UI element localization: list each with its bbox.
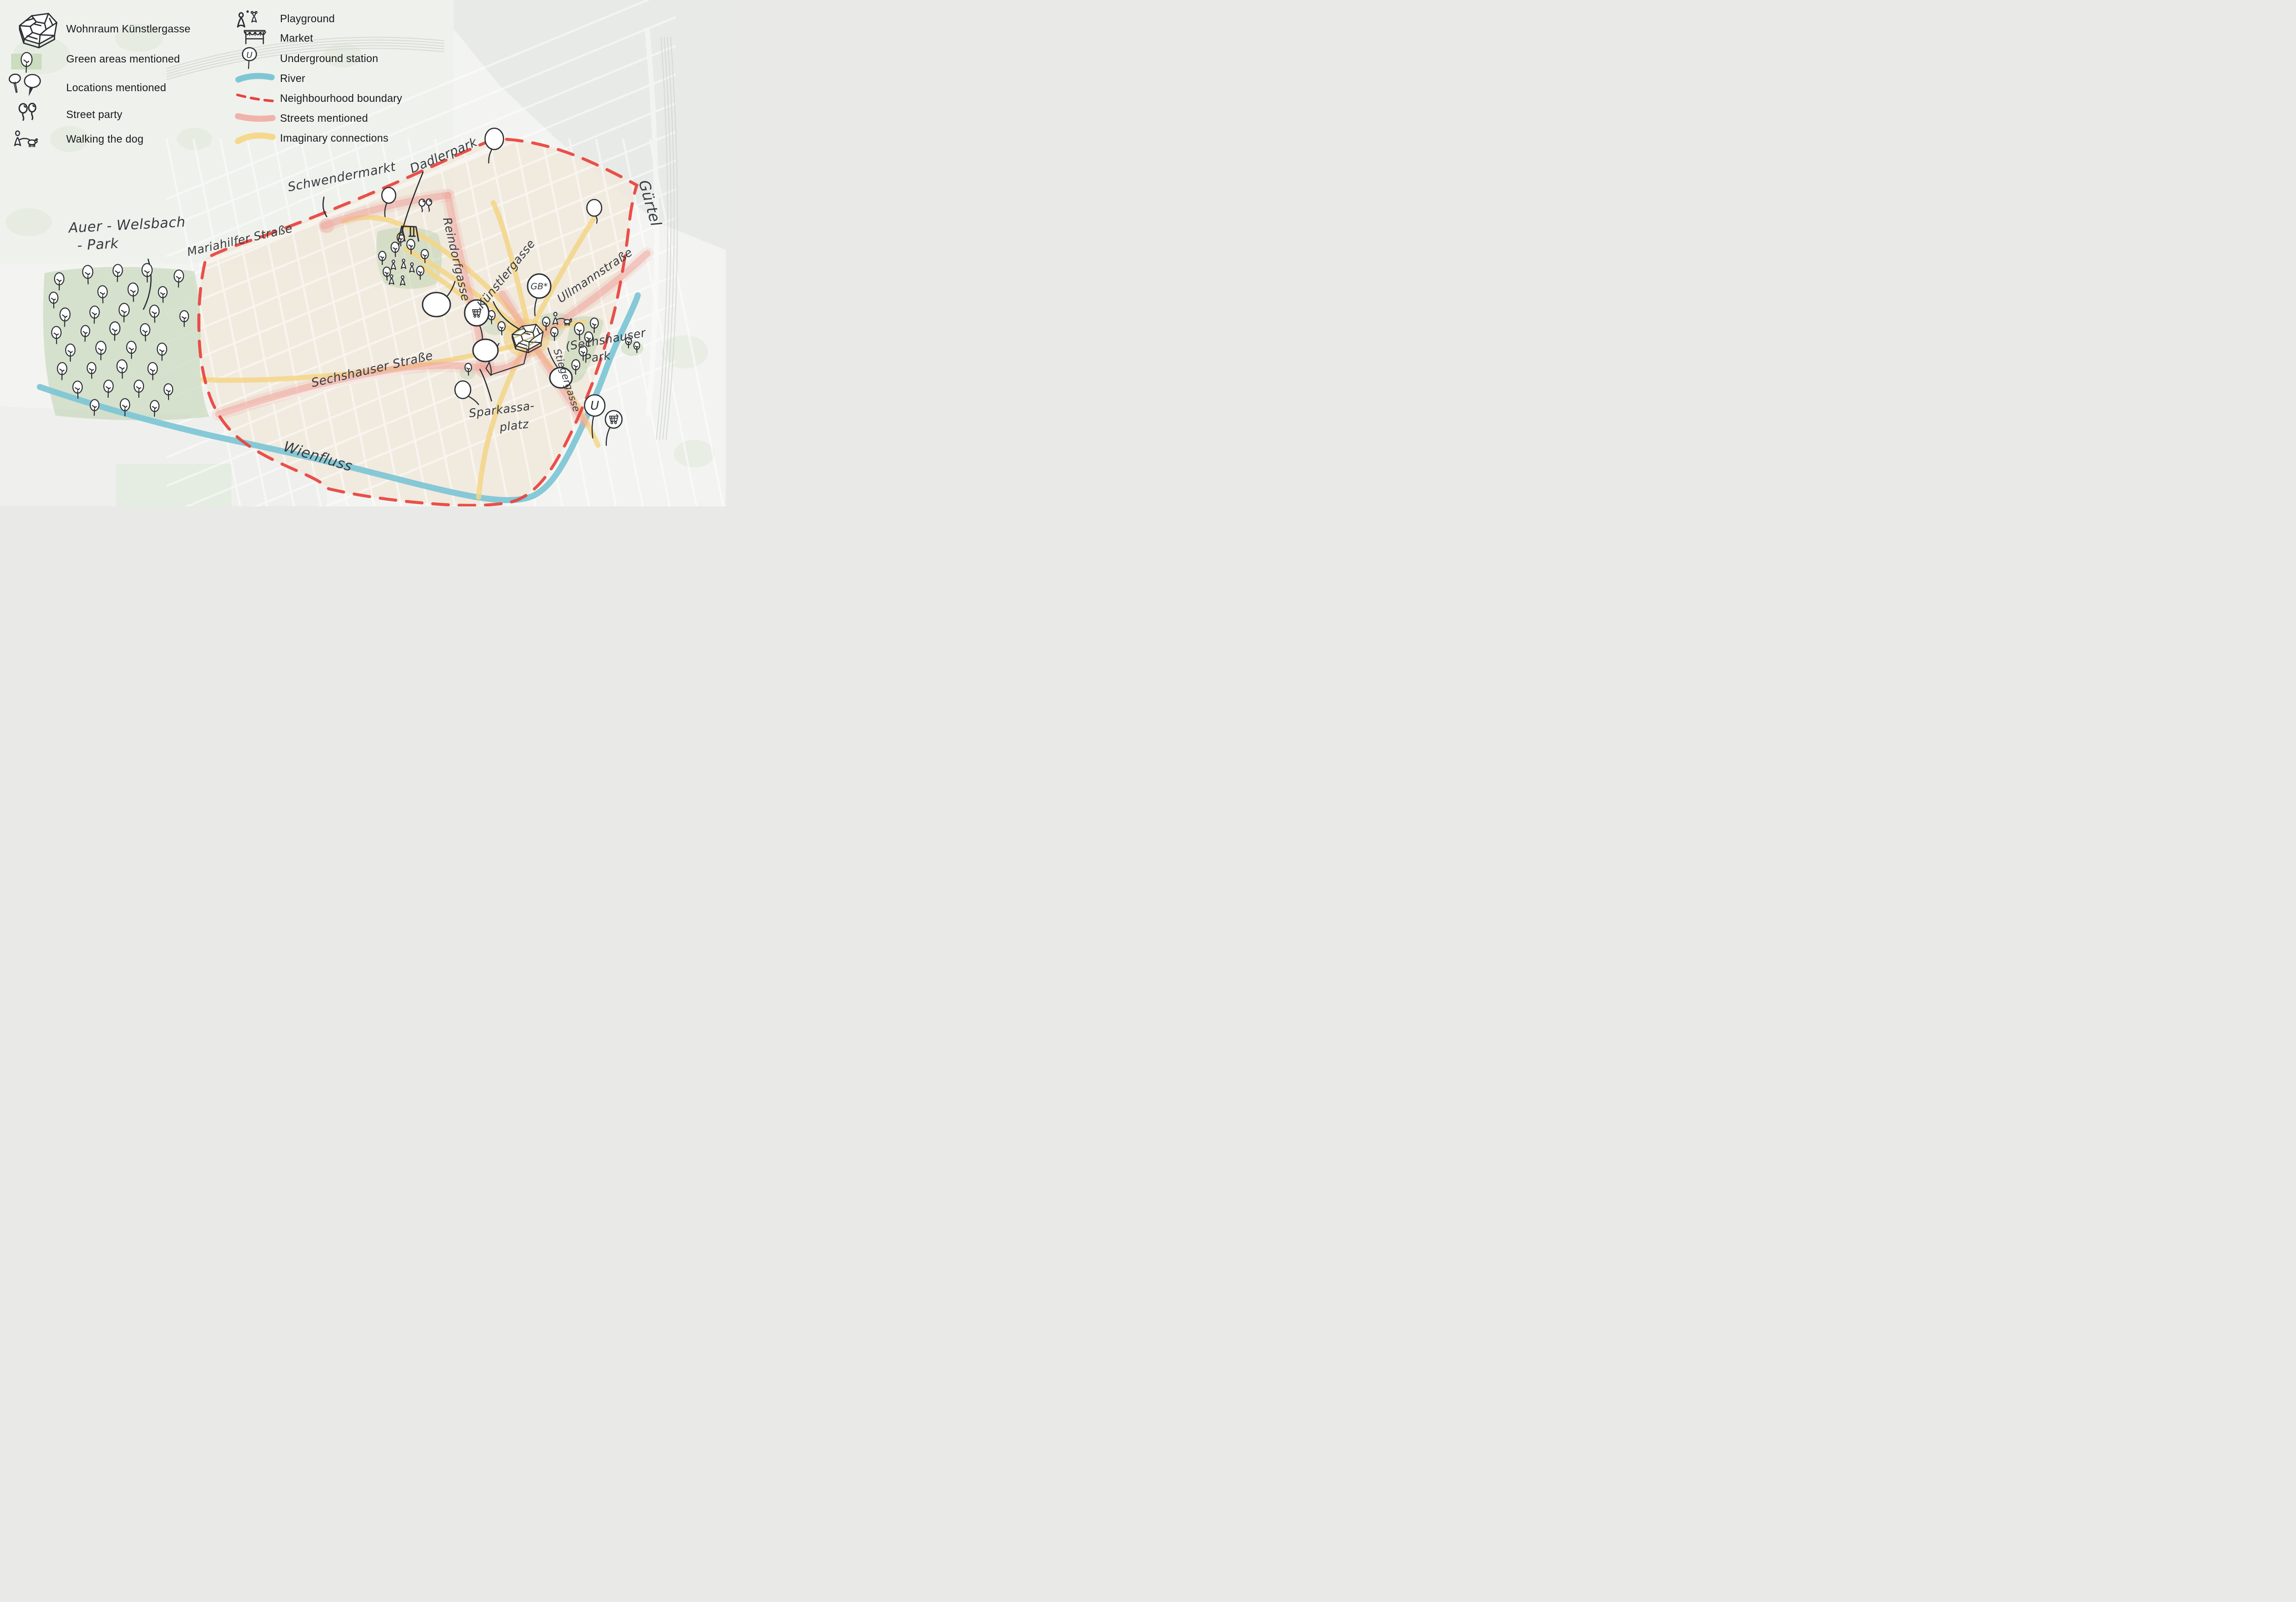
map-drawing: GB*UAuer - Welsbach- ParkMariahilfer Str… [0, 0, 726, 506]
shopping-cart-pin [605, 411, 622, 445]
u-pin-label: U [590, 399, 599, 413]
mental-map-canvas: GB*UAuer - Welsbach- ParkMariahilfer Str… [0, 0, 726, 506]
map-label-auer2: - Park [77, 236, 119, 254]
gb-pin-label: GB* [530, 281, 548, 292]
